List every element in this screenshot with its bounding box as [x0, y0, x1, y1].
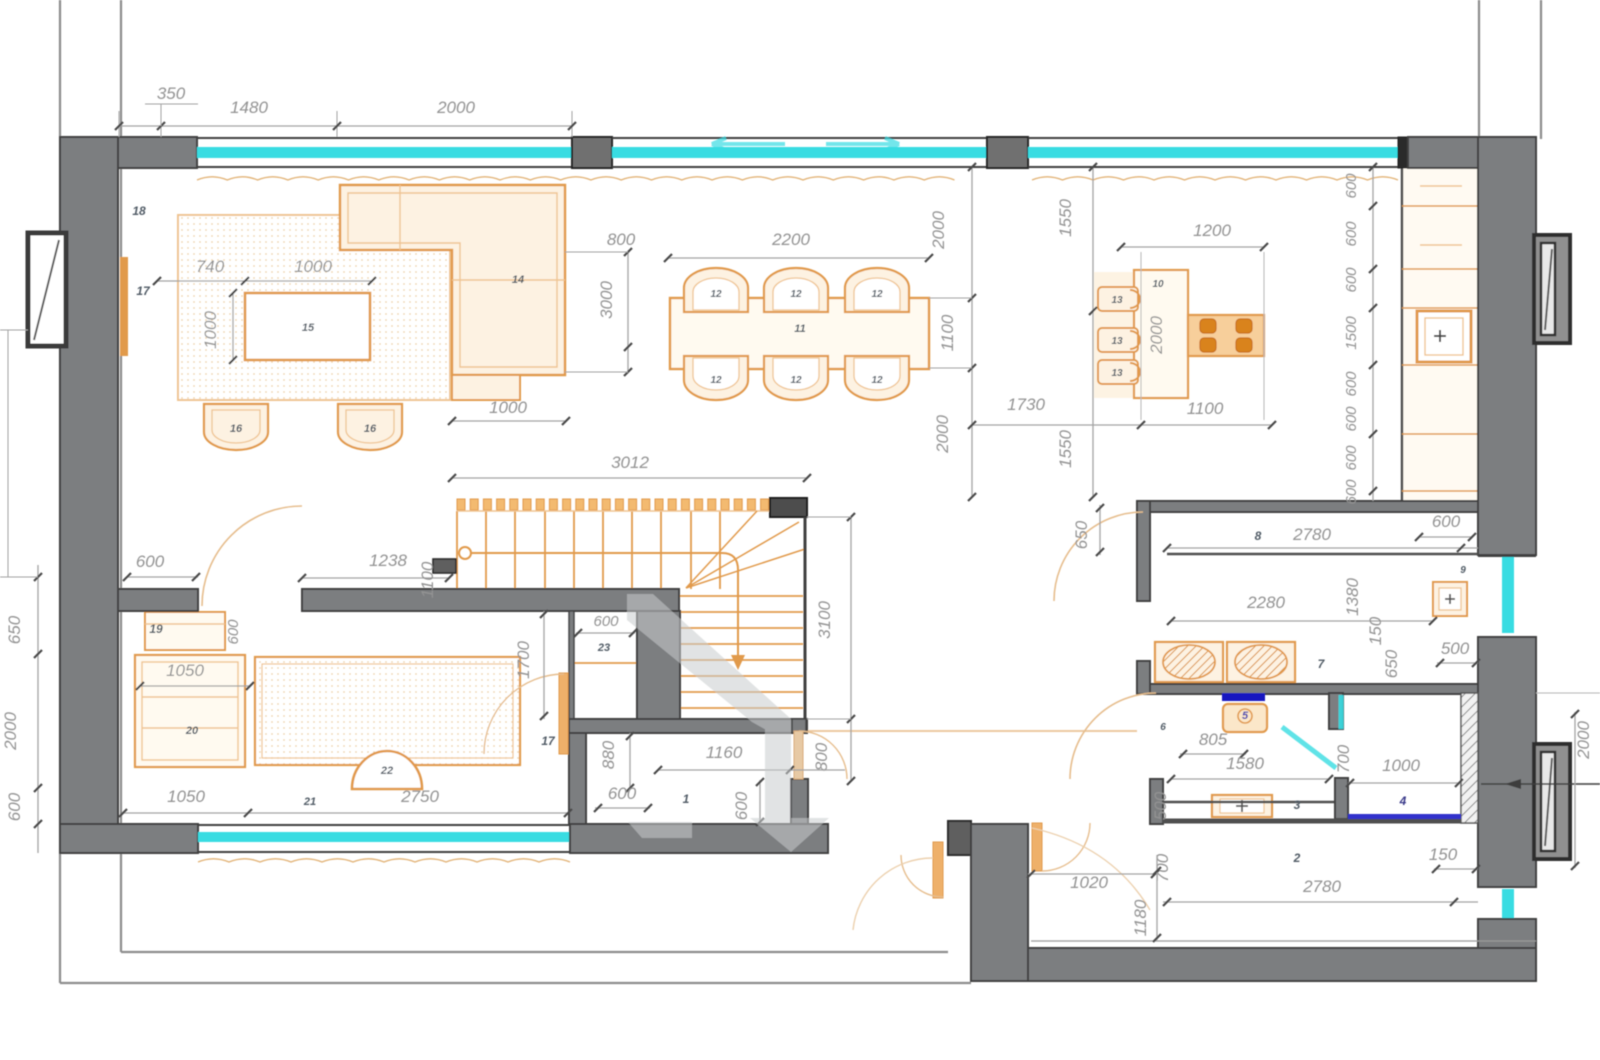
svg-text:2000: 2000: [933, 415, 952, 454]
svg-text:10: 10: [1152, 279, 1164, 290]
svg-text:600: 600: [225, 619, 242, 645]
svg-text:700: 700: [1153, 853, 1172, 882]
svg-text:13: 13: [1111, 295, 1123, 306]
svg-text:2200: 2200: [771, 230, 810, 249]
svg-text:880: 880: [599, 740, 618, 769]
svg-text:1480: 1480: [230, 98, 268, 117]
svg-text:1180: 1180: [1131, 899, 1150, 936]
svg-text:1100: 1100: [418, 561, 437, 598]
svg-text:600: 600: [1343, 479, 1360, 505]
svg-text:12: 12: [790, 375, 802, 386]
svg-text:1380: 1380: [1343, 578, 1362, 616]
svg-text:600: 600: [1343, 406, 1360, 432]
svg-text:2000: 2000: [436, 98, 475, 117]
svg-text:2000: 2000: [929, 211, 948, 250]
svg-text:14: 14: [512, 274, 524, 286]
svg-text:5: 5: [1242, 710, 1249, 722]
svg-text:12: 12: [790, 289, 802, 300]
svg-text:740: 740: [196, 257, 225, 276]
svg-text:1160: 1160: [706, 743, 743, 762]
svg-text:150: 150: [1366, 616, 1385, 645]
svg-text:600: 600: [1343, 173, 1360, 199]
svg-text:600: 600: [1343, 221, 1360, 247]
svg-text:2780: 2780: [1292, 525, 1331, 544]
svg-text:8: 8: [1255, 529, 1262, 543]
svg-text:800: 800: [607, 230, 636, 249]
svg-text:2000: 2000: [1, 712, 20, 751]
svg-text:18: 18: [132, 204, 146, 218]
svg-text:3000: 3000: [597, 281, 616, 319]
svg-text:15: 15: [302, 322, 315, 334]
svg-text:1550: 1550: [1056, 199, 1075, 237]
svg-text:3012: 3012: [611, 453, 649, 472]
svg-text:2280: 2280: [1246, 593, 1285, 612]
svg-text:500: 500: [1151, 791, 1170, 820]
svg-text:600: 600: [593, 613, 619, 630]
svg-text:17: 17: [541, 734, 556, 748]
svg-text:13: 13: [1111, 368, 1123, 379]
svg-text:2750: 2750: [400, 787, 439, 806]
svg-text:22: 22: [380, 765, 393, 777]
svg-text:150: 150: [1429, 845, 1458, 864]
svg-text:600: 600: [732, 791, 751, 820]
svg-text:9: 9: [1460, 565, 1466, 576]
svg-text:650: 650: [5, 615, 24, 644]
svg-text:1550: 1550: [1056, 430, 1075, 468]
svg-text:11: 11: [794, 323, 805, 335]
svg-text:650: 650: [1072, 520, 1091, 549]
svg-text:1050: 1050: [167, 787, 205, 806]
svg-text:23: 23: [597, 642, 610, 654]
svg-text:3: 3: [1294, 798, 1301, 812]
svg-text:600: 600: [5, 792, 24, 821]
svg-text:21: 21: [303, 796, 316, 808]
svg-text:1700: 1700: [514, 641, 533, 679]
svg-text:1000: 1000: [489, 398, 527, 417]
svg-text:1100: 1100: [1187, 399, 1224, 418]
svg-text:20: 20: [185, 725, 199, 737]
svg-text:17: 17: [136, 284, 151, 298]
svg-text:1580: 1580: [1226, 754, 1264, 773]
svg-text:800: 800: [812, 742, 831, 771]
svg-text:6: 6: [1160, 722, 1166, 733]
svg-text:1200: 1200: [1193, 221, 1231, 240]
svg-text:1020: 1020: [1070, 873, 1108, 892]
svg-text:12: 12: [871, 375, 883, 386]
svg-text:650: 650: [1382, 649, 1401, 678]
svg-text:3100: 3100: [815, 601, 834, 639]
svg-text:600: 600: [1343, 267, 1360, 293]
svg-text:1000: 1000: [294, 257, 332, 276]
svg-text:4: 4: [1399, 794, 1407, 808]
svg-text:16: 16: [364, 423, 377, 435]
svg-text:350: 350: [157, 84, 186, 103]
svg-text:19: 19: [149, 622, 163, 636]
svg-text:600: 600: [1343, 371, 1360, 397]
svg-text:600: 600: [1343, 445, 1360, 471]
svg-text:1100: 1100: [938, 314, 957, 351]
svg-text:16: 16: [230, 423, 243, 435]
svg-text:1238: 1238: [369, 551, 407, 570]
svg-text:1050: 1050: [166, 661, 204, 680]
svg-text:500: 500: [1441, 639, 1470, 658]
svg-text:2000: 2000: [1147, 316, 1166, 355]
svg-text:1000: 1000: [201, 311, 220, 349]
svg-text:600: 600: [608, 784, 637, 803]
svg-text:700: 700: [1334, 744, 1353, 773]
svg-text:13: 13: [1111, 336, 1123, 347]
svg-text:600: 600: [136, 552, 165, 571]
svg-text:805: 805: [1199, 730, 1228, 749]
svg-text:12: 12: [710, 289, 722, 300]
svg-text:1: 1: [683, 792, 690, 806]
svg-text:2780: 2780: [1302, 877, 1341, 896]
svg-text:1000: 1000: [1382, 756, 1420, 775]
svg-text:600: 600: [1432, 512, 1461, 531]
svg-text:1500: 1500: [1343, 316, 1360, 350]
svg-text:12: 12: [710, 375, 722, 386]
svg-text:2: 2: [1293, 851, 1301, 865]
svg-text:1730: 1730: [1007, 395, 1045, 414]
svg-text:2000: 2000: [1574, 721, 1593, 760]
svg-text:12: 12: [871, 289, 883, 300]
